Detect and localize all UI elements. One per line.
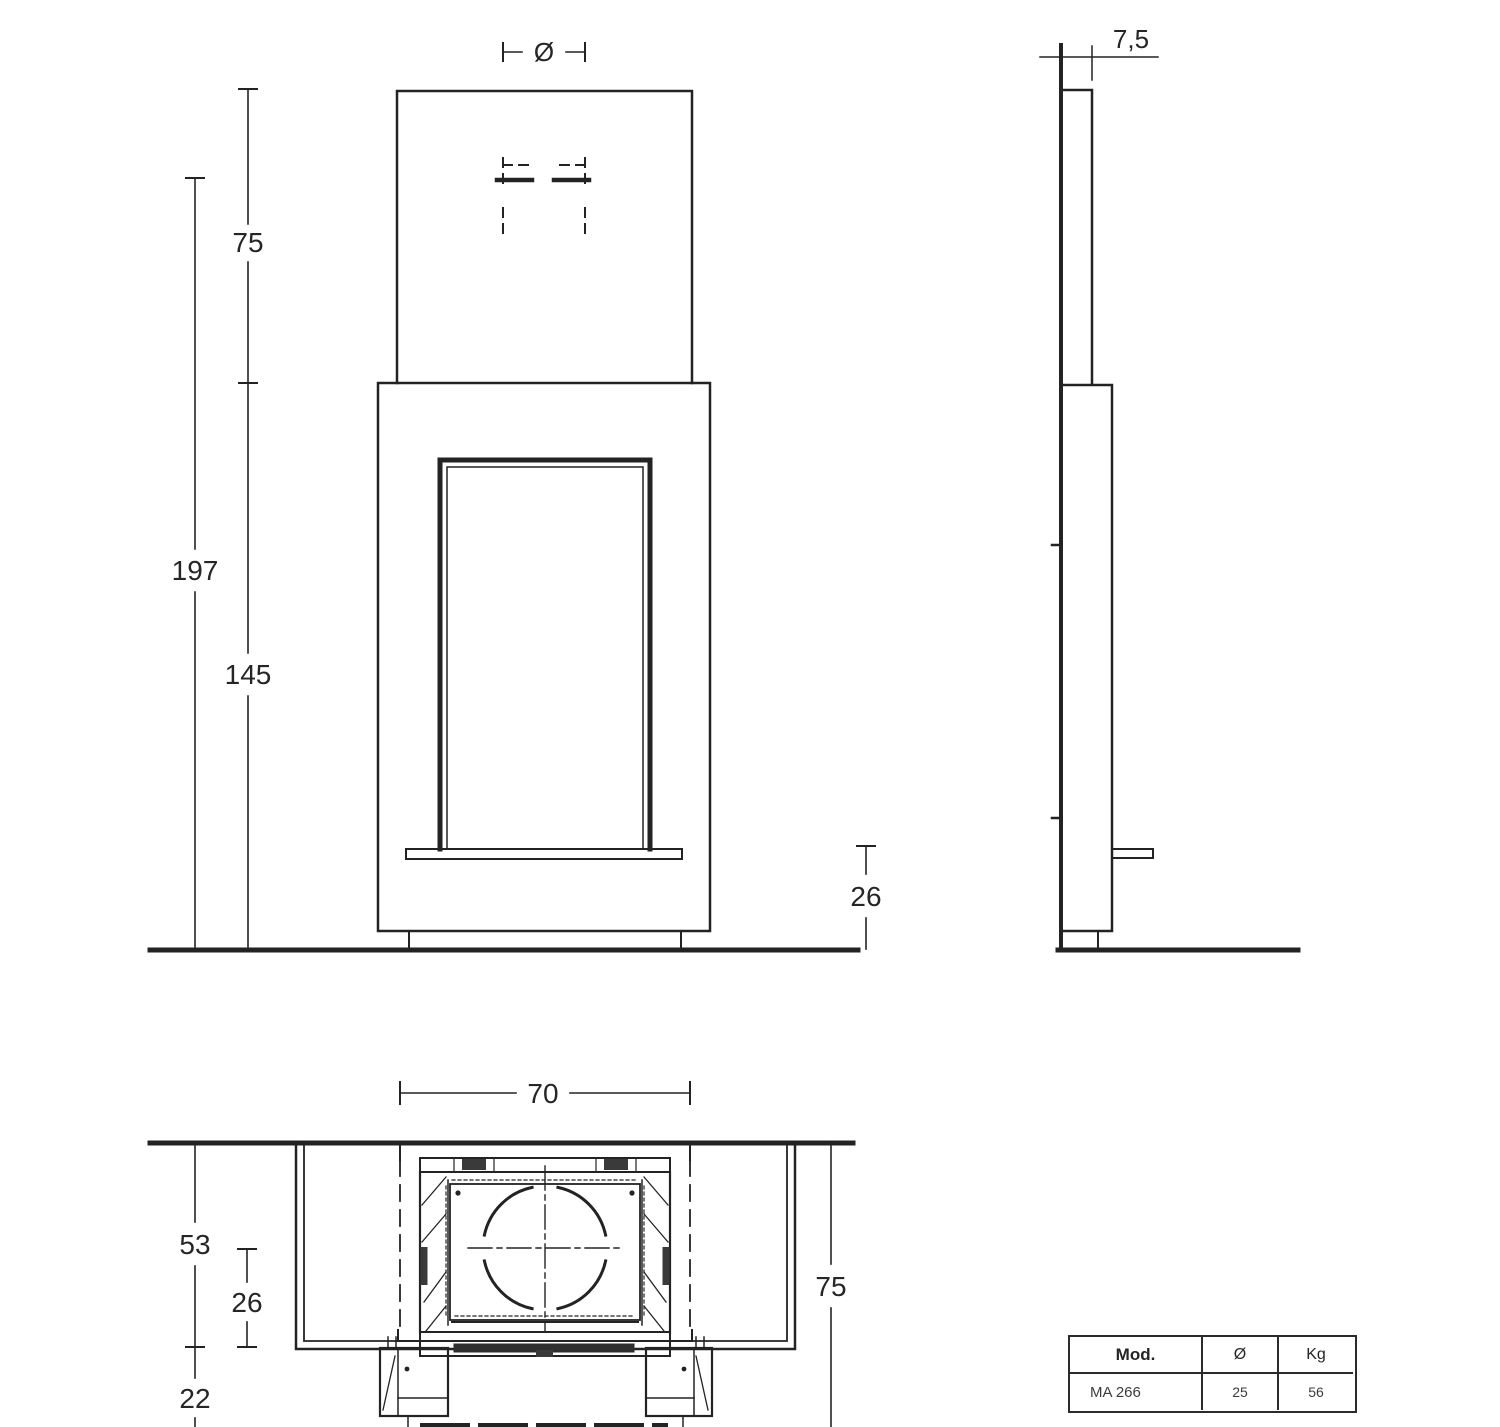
flue-hidden-lines	[503, 158, 586, 233]
dim-label-feet-depth: 22	[179, 1383, 210, 1414]
wall-anchor-marks	[1052, 545, 1060, 818]
spec-table-header-model: Mod.	[1070, 1337, 1203, 1374]
dim-label-upper-height: 75	[232, 227, 263, 258]
body-profile	[1062, 385, 1112, 931]
plinth-lines	[409, 933, 681, 948]
spec-table-model-value: MA 266	[1070, 1374, 1203, 1410]
side-elevation-view: 7,5	[1040, 24, 1298, 950]
dim-label-firebox-depth: 26	[231, 1287, 262, 1318]
left-foot	[380, 1337, 448, 1416]
dim-line-75-145	[239, 89, 257, 949]
dim-label-side-dimension: 75	[815, 1271, 846, 1302]
plan-section-view: 70	[150, 1078, 853, 1427]
right-foot	[646, 1337, 712, 1416]
chimney-profile	[1063, 90, 1092, 383]
dim-label-front-width: 70	[527, 1078, 558, 1109]
spec-table-header-diameter: Ø	[1203, 1337, 1279, 1374]
spec-table-header-weight: Kg	[1279, 1337, 1353, 1374]
spec-table-diameter-value: 25	[1203, 1374, 1279, 1410]
dim-label-body-height: 145	[225, 659, 272, 690]
spec-table: Mod. Ø Kg MA 266 25 56	[1068, 1335, 1357, 1413]
hearth-shelf	[406, 849, 682, 859]
fireplace-technical-drawing: Ø	[0, 0, 1500, 1427]
technical-drawing-page: Ø	[0, 0, 1500, 1427]
spec-table-weight-value: 56	[1279, 1374, 1353, 1410]
dim-label-wall-offset: 7,5	[1113, 24, 1149, 54]
fire-door-frame	[440, 460, 650, 849]
dim-label-total-height: 197	[172, 555, 219, 586]
dim-label-base-height: 26	[850, 881, 881, 912]
fire-door-inner-line	[447, 467, 643, 849]
centerlines	[468, 1166, 622, 1332]
shelf-profile	[1112, 849, 1153, 858]
door-latch-clip	[536, 1350, 553, 1357]
dim-label-flue-diameter: Ø	[534, 37, 554, 67]
front-elevation-view: Ø	[150, 37, 882, 950]
chimney-casing-outline	[397, 91, 692, 383]
dim-label-total-depth: 53	[179, 1229, 210, 1260]
